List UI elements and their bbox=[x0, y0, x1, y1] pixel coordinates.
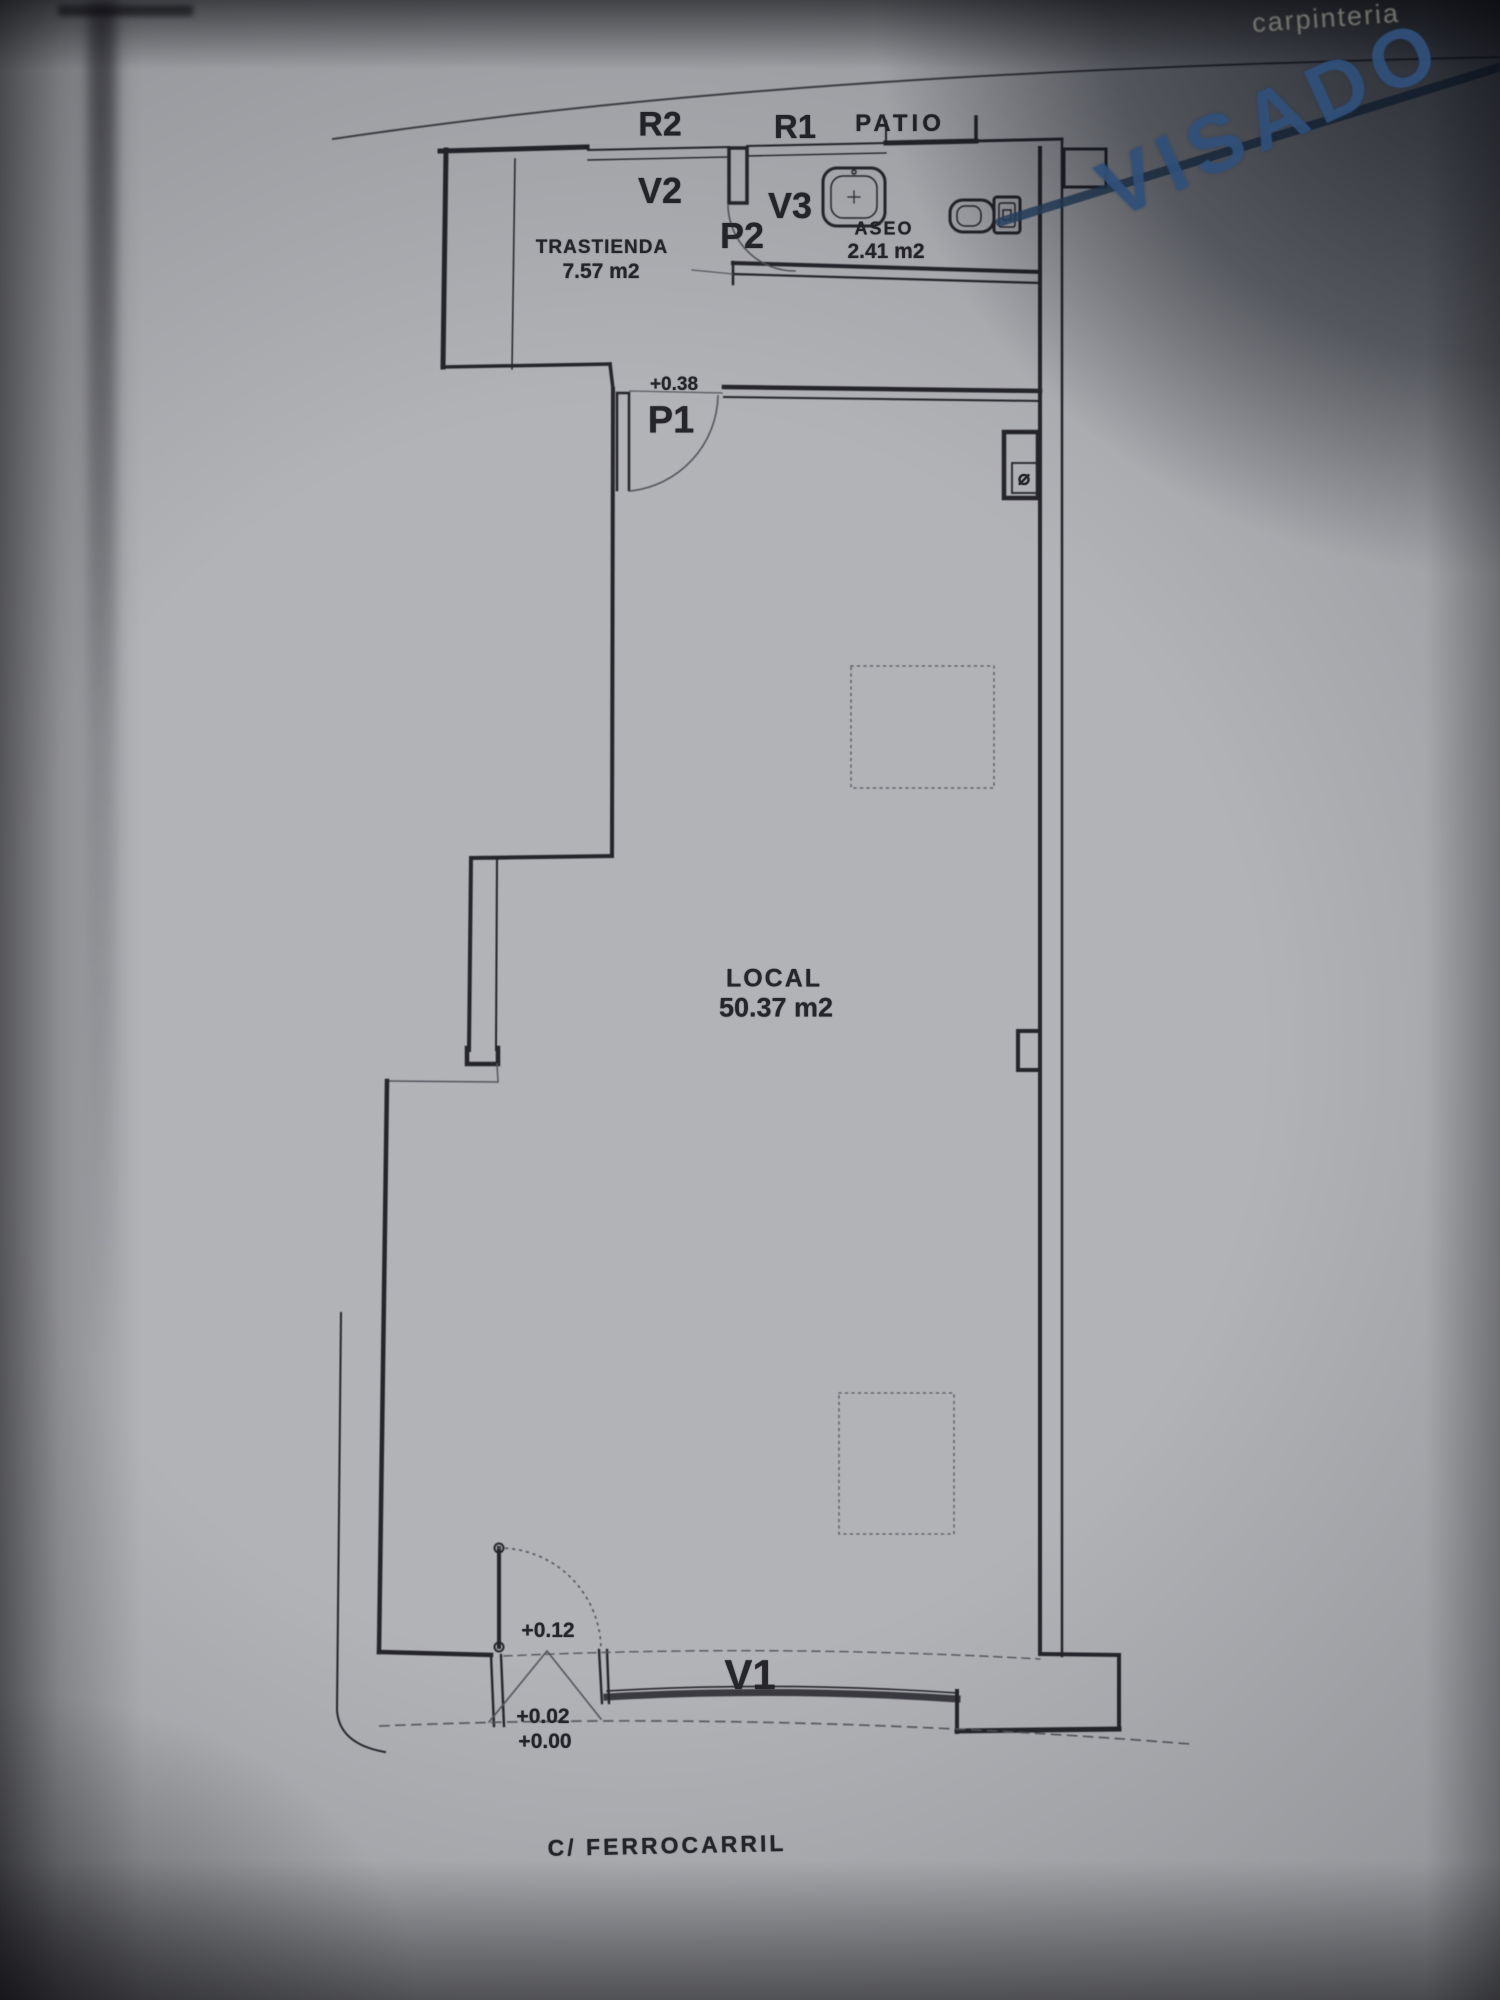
window-band bbox=[588, 143, 886, 160]
label-area-trastienda: 7.57 m2 bbox=[562, 260, 639, 284]
label-window-v1: V1 bbox=[724, 1651, 775, 1699]
label-room-local: LOCAL bbox=[726, 965, 822, 994]
label-level-entry: +0.12 bbox=[521, 1619, 574, 1643]
aseo-south-wall bbox=[692, 262, 1040, 284]
label-door-p1: P1 bbox=[648, 400, 694, 443]
label-room-patio: PATIO bbox=[855, 110, 945, 138]
plot-boundary-line bbox=[337, 1313, 385, 1752]
label-area-aseo: 2.41 m2 bbox=[847, 240, 924, 264]
label-area-local: 50.37 m2 bbox=[719, 993, 833, 1024]
label-level-threshold: +0.02 bbox=[516, 1705, 569, 1729]
pipe-symbol-icon: ⌀ bbox=[1018, 466, 1030, 491]
local-right-wall bbox=[1040, 140, 1062, 1656]
label-door-p2: P2 bbox=[720, 215, 764, 257]
label-level-hall: +0.38 bbox=[650, 374, 698, 396]
street-level-dashed-line bbox=[380, 1721, 1190, 1744]
label-window-r1: R1 bbox=[774, 108, 816, 146]
niche-box bbox=[1018, 1031, 1039, 1070]
label-street-name: C/ FERROCARRIL bbox=[547, 1830, 786, 1862]
dotted-area-2 bbox=[839, 1393, 954, 1534]
entrance-door-leaf bbox=[495, 1544, 504, 1652]
dotted-area-1 bbox=[851, 666, 994, 788]
v1-window-sill bbox=[607, 1686, 957, 1699]
label-level-street: +0.00 bbox=[518, 1730, 571, 1754]
label-window-v3: V3 bbox=[768, 185, 812, 227]
label-window-r2: R2 bbox=[638, 106, 681, 145]
local-left-wall bbox=[379, 389, 613, 1652]
p1-door-leaf bbox=[617, 393, 629, 490]
label-room-trastienda: TRASTIENDA bbox=[536, 237, 668, 259]
label-window-v2: V2 bbox=[638, 170, 682, 212]
floor-plan-photo: R2 R1 PATIO V2 V3 P2 TRASTIENDA 7.57 m2 … bbox=[0, 0, 1500, 2000]
sink-fixture bbox=[823, 168, 885, 226]
v3-jamb-block bbox=[729, 148, 747, 203]
label-room-aseo: ASEO bbox=[854, 219, 913, 240]
